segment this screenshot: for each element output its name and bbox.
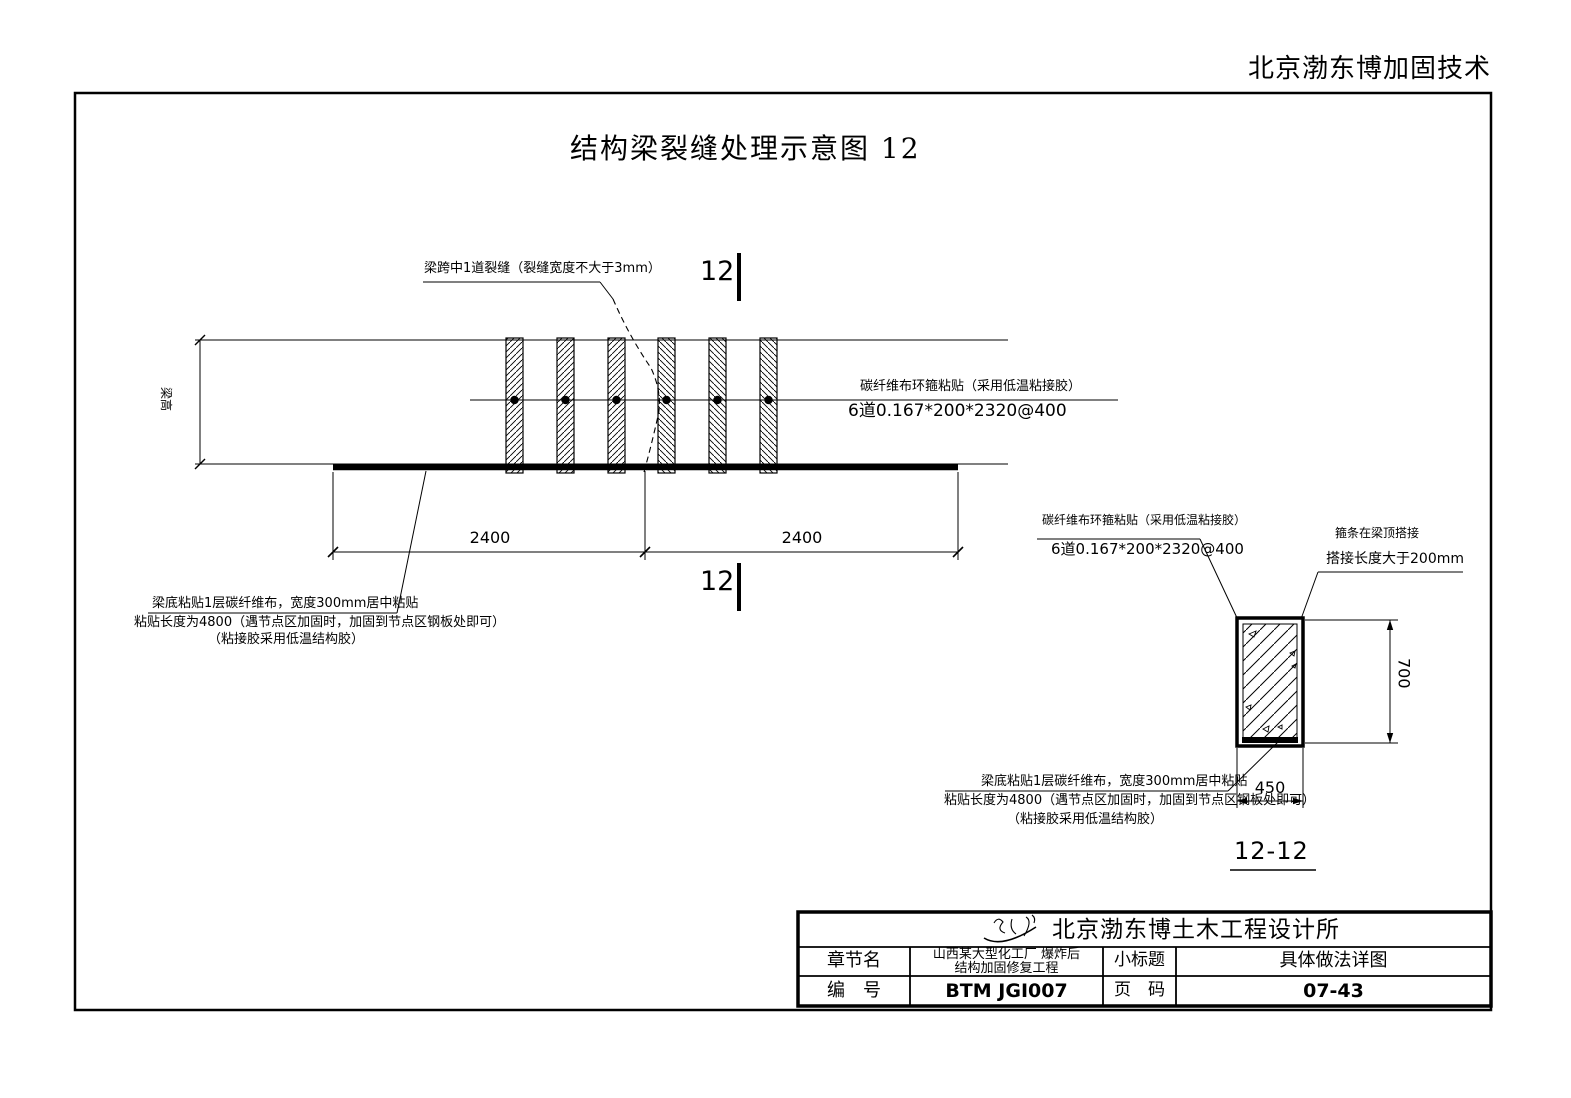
dim-span-right: 2400: [767, 529, 837, 547]
elev-wrap-callout-line2: 6道0.167*200*2320@400: [848, 402, 1067, 422]
bottom-callout-leader: [397, 471, 426, 613]
lap-callout-leader: [1301, 572, 1318, 619]
titleblock-page-label: 页 码: [1103, 981, 1176, 1001]
titleblock-company: 北京渤东博土木工程设计所: [1052, 917, 1340, 943]
titleblock-number-label: 编 号: [798, 981, 910, 1002]
sec-bottom-callout-line1: 梁底粘贴1层碳纤维布，宽度300mm居中粘贴: [981, 775, 1247, 790]
sec-lap-callout-line2: 搭接长度大于200mm: [1326, 551, 1464, 567]
dim-span-left: 2400: [455, 529, 525, 547]
sheet-title: 结构梁裂缝处理示意图 12: [570, 133, 1000, 165]
elev-wrap-callout-line1: 碳纤维布环箍粘贴（采用低温粘接胶）: [860, 380, 1081, 395]
sec-wrap-callout-line1: 碳纤维布环箍粘贴（采用低温粘接胶）: [1042, 514, 1246, 528]
titleblock-number-value: BTM JGI007: [910, 981, 1103, 1003]
company-logo: [984, 915, 1036, 942]
sec-lap-callout-line1: 箍条在梁顶搭接: [1335, 527, 1419, 541]
drawing-sheet: 北京渤东博加固技术 结构梁裂缝处理示意图 12 梁跨中1道裂缝（裂缝宽度不大于3…: [0, 0, 1571, 1098]
crack-leader: [600, 282, 613, 299]
beam-height-label: 梁高: [158, 384, 172, 414]
sec-bottom-callout-line2: 粘贴长度为4800（遇节点区加固时，加固到节点区钢板处即可）: [944, 794, 1315, 809]
section-height-dimension: [1305, 620, 1398, 743]
beam-elevation: [148, 253, 1118, 613]
elev-bottom-callout-line3: （粘接胶采用低温结构胶）: [208, 633, 364, 648]
section-cut-bar-top: [737, 253, 741, 301]
titleblock-chapter-label: 章节名: [798, 951, 910, 972]
sec-bottom-callout-line3: （粘接胶采用低温结构胶）: [1007, 813, 1163, 828]
section-cut-bar-bottom: [737, 563, 741, 611]
section-mark-bottom: 12: [700, 566, 734, 597]
elev-bottom-callout-line1: 梁底粘贴1层碳纤维布，宽度300mm居中粘贴: [152, 597, 418, 612]
titleblock-chapter-line2: 结构加固修复工程: [910, 962, 1103, 977]
titleblock-subtitle-value: 具体做法详图: [1176, 951, 1491, 972]
crack-callout-text: 梁跨中1道裂缝（裂缝宽度不大于3mm）: [424, 262, 661, 277]
sheet-header-company: 北京渤东博加固技术: [1150, 55, 1491, 85]
section-label: 12-12: [1234, 838, 1309, 866]
sec-wrap-callout-line2: 6道0.167*200*2320@400: [1051, 541, 1244, 558]
cfrp-hoop-strips: [506, 338, 777, 473]
titleblock-subtitle-label: 小标题: [1103, 951, 1176, 971]
section-concrete: [1243, 624, 1297, 740]
section-mark-top: 12: [700, 256, 734, 287]
elev-bottom-callout-line2: 粘贴长度为4800（遇节点区加固时，加固到节点区钢板处即可）: [134, 616, 505, 631]
dim-section-height: 700: [1394, 658, 1412, 689]
titleblock-page-value: 07-43: [1176, 981, 1491, 1003]
